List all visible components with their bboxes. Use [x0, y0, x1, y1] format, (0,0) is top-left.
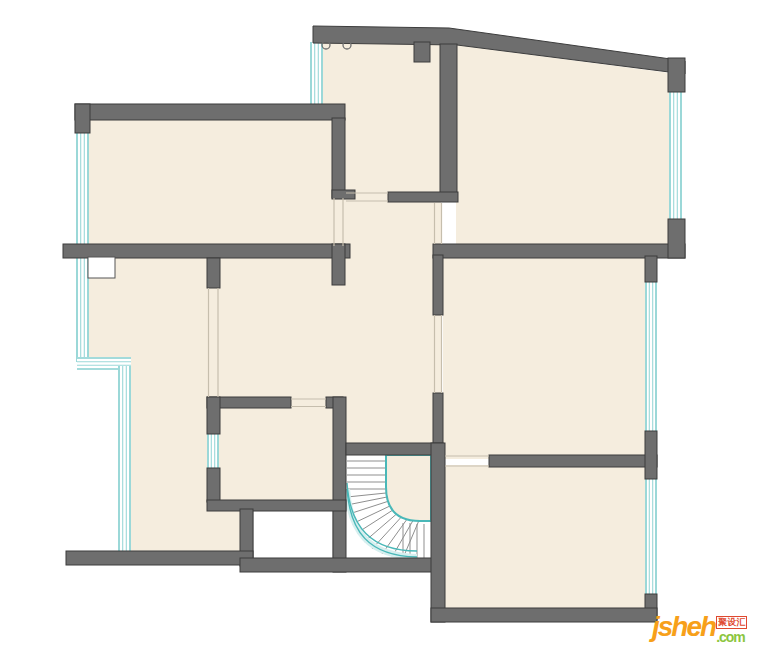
wall-topleft-right-stub: [332, 190, 355, 199]
logo-brand-text: jsheh: [652, 613, 715, 641]
wall-right-window-pier: [645, 431, 657, 479]
wall-smallroom-left-lower: [207, 468, 220, 502]
logo-tld-text: .com: [716, 630, 745, 644]
room-bottom-right-floor: [443, 465, 645, 610]
window-top-middle: [310, 42, 323, 106]
room-top-right-floor: [456, 45, 670, 246]
staircase: [346, 455, 431, 558]
stair-landing: [386, 455, 431, 521]
window-right-lower: [645, 477, 657, 596]
window-left-middle: [76, 258, 89, 362]
wall-bottomright-bottom: [431, 608, 657, 622]
wall-pier-top: [414, 42, 430, 62]
wall-smallroom-right: [333, 397, 346, 572]
room-bottom-left-floor: [77, 256, 250, 562]
room-middle-right-floor: [443, 256, 645, 459]
wall-stair-right: [431, 443, 445, 622]
window-right-middle: [645, 280, 657, 433]
wall-hallway-right-upper: [433, 255, 443, 315]
window-small-room: [207, 432, 219, 470]
wall-right-step: [645, 256, 657, 282]
duct-box: [88, 257, 115, 278]
wall-topright-cap-lower: [668, 219, 685, 258]
wall-stair-top: [346, 443, 443, 455]
wall-topleft-top: [75, 104, 345, 120]
wall-topright-cap-upper: [668, 58, 685, 92]
wall-middle-left: [63, 244, 350, 258]
logo-right-column: 聚设汇 .com: [716, 616, 747, 644]
wall-topmid-bottom: [388, 192, 458, 202]
wall-leftroom-divider-stub: [207, 258, 220, 288]
wall-stair-bottom: [240, 558, 443, 572]
watermark-logo: jsheh 聚设汇 .com: [652, 613, 747, 644]
floor-plan-drawing: [0, 0, 760, 650]
void-room: [253, 509, 333, 560]
wall-topleft-corner: [75, 104, 90, 133]
floor-plan-page: jsheh 聚设汇 .com: [0, 0, 760, 650]
wall-bottomright-top: [489, 455, 657, 467]
wall-topleft-right: [332, 118, 345, 198]
wall-smallroom-left-upper: [207, 397, 220, 434]
wall-smallroom-bottom: [207, 500, 346, 511]
wall-bottomleft-bottom: [66, 551, 253, 565]
wall-hallway-left-stub: [332, 244, 345, 285]
logo-chinese-text: 聚设汇: [716, 616, 747, 629]
window-left-upper: [76, 131, 89, 245]
window-left-lower: [118, 366, 131, 553]
wall-topmid-topright-divider: [440, 44, 457, 193]
window-top-right: [669, 90, 682, 221]
